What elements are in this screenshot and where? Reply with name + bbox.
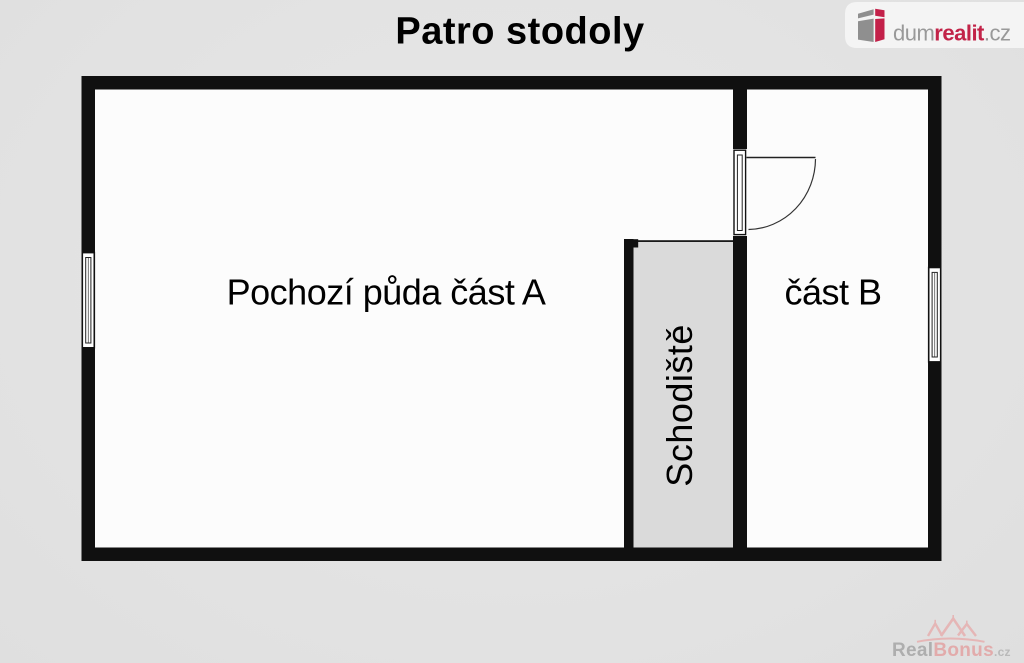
svg-text:dumrealit.cz: dumrealit.cz xyxy=(893,21,1011,46)
svg-text:část B: část B xyxy=(784,272,881,313)
svg-text:RealBonus.cz: RealBonus.cz xyxy=(892,640,1011,661)
svg-text:Patro stodoly: Patro stodoly xyxy=(395,11,644,53)
svg-text:Schodiště: Schodiště xyxy=(659,324,700,487)
svg-text:Pochozí půda část A: Pochozí půda část A xyxy=(227,272,546,313)
